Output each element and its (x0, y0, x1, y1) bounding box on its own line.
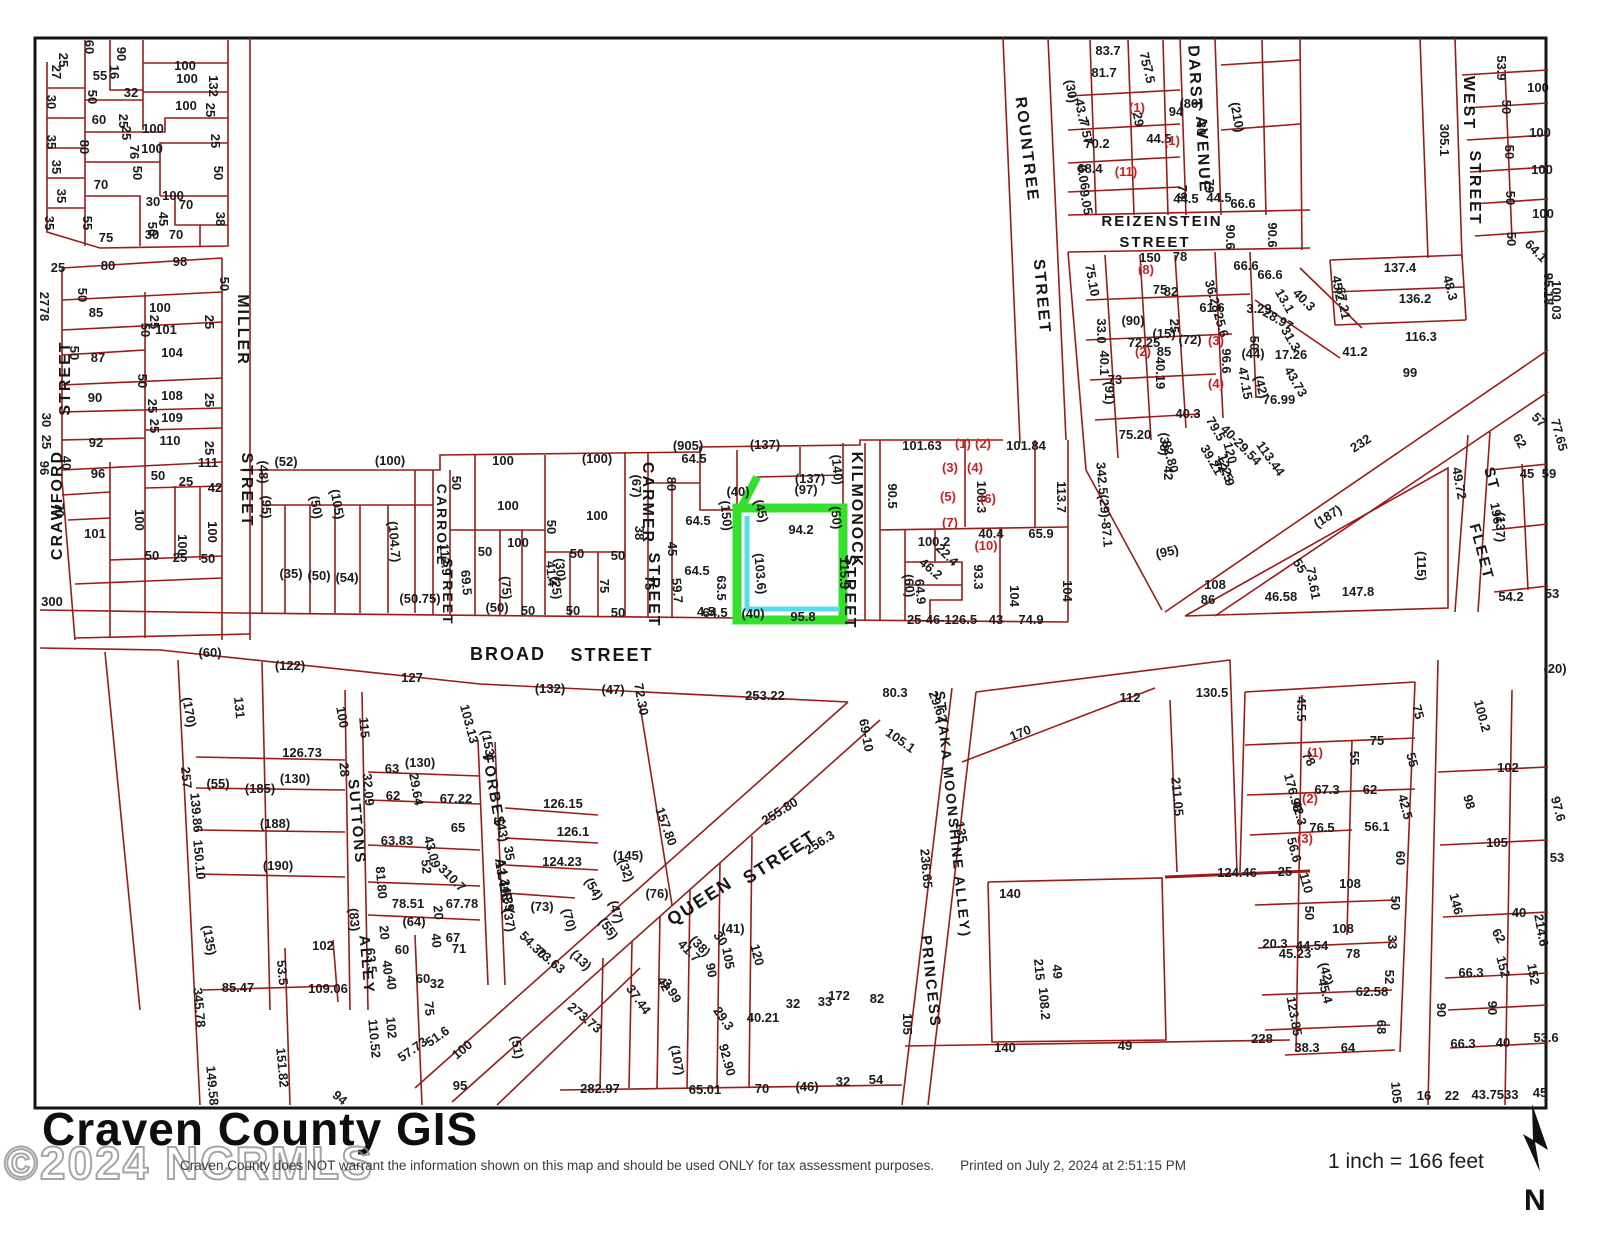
dimension-label: 41.2 (1342, 344, 1367, 359)
dimension-label: 105 (900, 1013, 915, 1035)
dimension-label: 77.65 (1548, 417, 1571, 452)
dimension-label: 100 (1529, 125, 1551, 140)
dimension-label: 101.63 (902, 438, 942, 453)
dimension-label: 103.13 (457, 703, 482, 745)
street-label-princess: PRINCESS (917, 935, 944, 1029)
lot-number-label: (10) (974, 538, 997, 553)
lot-number-label: (40) (726, 484, 749, 499)
dimension-label: 102 (312, 938, 334, 953)
north-arrow-icon: N (1490, 1098, 1570, 1228)
street-label-street: STREET (841, 554, 858, 629)
dimension-label: 105.1 (883, 725, 918, 756)
parcel-map[interactable]: 2527306055163290100100132251005025602510… (0, 0, 1600, 1236)
dimension-label: 62 (1489, 926, 1509, 946)
dimension-label: 29 (1130, 111, 1147, 128)
dimension-label: 123.85 (1284, 995, 1306, 1037)
lot-number-label: (3) (1208, 333, 1224, 348)
dimension-label: 105 (1486, 835, 1508, 850)
parcel-boundary-line (40, 610, 240, 613)
dimension-label: 43 (989, 612, 1003, 627)
parcel-boundary-line (1428, 660, 1438, 1105)
printed-timestamp: Printed on July 2, 2024 at 2:51:15 PM (960, 1158, 1186, 1173)
dimension-label: 50 (449, 476, 464, 490)
dimension-label: 27 (37, 292, 52, 306)
dimension-label: 90 (1485, 1001, 1500, 1015)
dimension-label: 342.5(29)-87.1 (1093, 461, 1115, 547)
dimension-label: 42 (208, 480, 222, 495)
street-label-rountree: ROUNTREE (1012, 96, 1042, 203)
dimension-label: 49 (1118, 1038, 1132, 1053)
dimension-label: 63.83 (381, 833, 414, 848)
dimension-label: 40.3 (1175, 406, 1200, 421)
lot-number-label: (91) (1102, 381, 1117, 404)
dimension-label: 50 (201, 551, 215, 566)
dimension-label: 136.2 (1399, 291, 1432, 306)
dimension-label: 32 (786, 996, 800, 1011)
lot-number-label: (54) (335, 570, 358, 585)
dimension-label: 140 (994, 1040, 1016, 1055)
dimension-label: 83.7 (1095, 43, 1120, 58)
dimension-label: 98 (1460, 793, 1478, 811)
parcel-boundary-line (976, 660, 1230, 692)
dimension-label: 109 (161, 410, 183, 425)
dimension-label: 66.6 (1233, 258, 1258, 273)
parcel-boundary-line (68, 518, 110, 520)
street-label-st-aka-moonshine-alley-: ST (AKA MOONSHINE ALLEY) (932, 690, 974, 939)
dimension-label: 108 (1339, 876, 1361, 891)
parcel-boundary-line (1420, 38, 1428, 258)
dimension-label: 56.1 (1364, 819, 1389, 834)
dimension-label: 48.3 (1440, 274, 1461, 302)
dimension-label: 50 (566, 603, 580, 618)
dimension-label: 53.9 (1494, 55, 1509, 80)
dimension-label: 60 (82, 40, 97, 54)
street-label-carmer: CARMER (639, 462, 656, 544)
disclaimer-body: Craven County does NOT warrant the infor… (180, 1158, 934, 1173)
lot-number-label: (145) (613, 848, 643, 863)
dimension-label: 67.3 (1314, 782, 1339, 797)
dimension-label: 131 (231, 696, 248, 719)
dimension-label: 55 (1403, 751, 1421, 769)
dimension-label: 228 (1251, 1031, 1273, 1046)
lot-number-label: (135) (199, 924, 219, 957)
dimension-label: 66.3 (1450, 1036, 1475, 1051)
dimension-label: 82 (870, 991, 884, 1006)
street-label-miller: MILLER (234, 294, 251, 366)
dimension-label: 90 (114, 47, 129, 61)
dimension-label: 64 (1341, 1040, 1356, 1055)
dimension-label: 40 (1512, 905, 1526, 920)
dimension-label: 42.5 (1395, 793, 1416, 821)
dimension-label: 80 (101, 258, 115, 273)
dimension-label: 100 (205, 521, 220, 543)
dimension-label: 90.6 (1265, 222, 1280, 247)
dimension-label: 232 (1347, 431, 1373, 455)
dimension-label: 30 (145, 227, 159, 242)
dimension-label: 96.6 (1219, 348, 1234, 373)
dimension-label: 30 (146, 194, 160, 209)
dimension-label: 113.7 (1054, 481, 1069, 513)
dimension-label: 64.5 (685, 513, 710, 528)
dimension-label: 55 (80, 216, 95, 230)
dimension-label: 45 (1520, 466, 1534, 481)
dimension-label: 52 (418, 859, 434, 875)
lot-number-label: (150) (718, 500, 736, 532)
dimension-label: 75 (99, 230, 113, 245)
dimension-label: 62 (1510, 431, 1530, 451)
dimension-label: 50 (211, 166, 226, 180)
dimension-label: 25 (202, 315, 217, 329)
dimension-label: 100 (176, 71, 198, 86)
dimension-label: 67.78 (446, 896, 479, 911)
dimension-label: 40 (1496, 1035, 1510, 1050)
lot-number-label: (45) (751, 498, 771, 524)
dimension-label: 96 (91, 466, 105, 481)
dimension-label: 75 (1370, 733, 1384, 748)
dimension-label: 255.80 (759, 794, 801, 828)
dimension-label: 35 (49, 160, 64, 174)
dimension-label: 32 (836, 1074, 850, 1089)
dimension-label: 92.90 (716, 1042, 739, 1077)
dimension-label: 62.58 (1356, 984, 1389, 999)
dimension-label: 60 (1393, 851, 1408, 865)
parcel-boundary-line (262, 662, 270, 1010)
dimension-label: 95 (453, 1078, 467, 1093)
dimension-label: 75 (1409, 703, 1427, 721)
street-label-street: STREET (57, 340, 74, 415)
dimension-label: 151.82 (273, 1047, 291, 1088)
parcel-boundary-line (345, 690, 350, 1010)
dimension-label: 50 (521, 603, 535, 618)
lot-number-label: (50) (828, 505, 845, 529)
dimension-label: 104 (161, 345, 183, 360)
dimension-label: 172 (828, 988, 850, 1003)
dimension-label: 62 (1363, 782, 1377, 797)
lot-number-label: (40) (741, 606, 764, 621)
street-label-fleet: FLEET (1466, 522, 1497, 582)
dimension-label: 50 (130, 166, 145, 180)
dimension-label: 78 (37, 307, 52, 321)
dimension-label: 93.3 (971, 564, 986, 589)
street-label-street: STREET (1119, 234, 1190, 251)
dimension-label: 46.58 (1265, 589, 1298, 604)
dimension-label: 50 (1302, 906, 1317, 920)
parcel-boundary-line (1221, 60, 1300, 65)
street-label-avenue: AVENUE (1192, 116, 1213, 194)
dimension-label: 100 (333, 705, 352, 729)
lot-number-label: (2) (1135, 344, 1151, 359)
lot-number-label: (76) (645, 886, 668, 901)
lot-number-label: (3) (942, 460, 958, 475)
dimension-label: 20 (430, 905, 446, 921)
dimension-label: 52 (1382, 970, 1397, 984)
dimension-label: 40.19 (1153, 357, 1168, 390)
dimension-label: 59 (1542, 466, 1556, 481)
dimension-label: 90 (1434, 1003, 1449, 1017)
dimension-label: 75 (1137, 51, 1154, 68)
lot-number-label: (83) (346, 907, 363, 931)
dimension-label: 70.2 (1084, 136, 1109, 151)
dimension-label: 28 (336, 762, 352, 778)
lot-number-label: (122) (275, 658, 305, 673)
dimension-label: 65.9 (1028, 526, 1053, 541)
lot-number-label: (55) (206, 776, 229, 791)
dimension-label: 101.84 (1006, 438, 1047, 453)
dimension-label: 282.97 (580, 1081, 620, 1096)
lot-number-label: (132) (535, 681, 565, 696)
street-label-street: STREET (440, 558, 456, 625)
dimension-label: 86 (1201, 592, 1215, 607)
dimension-label: 55 (1347, 751, 1362, 765)
dimension-label: 27 (49, 65, 64, 79)
dimension-label: 101 (84, 526, 106, 541)
dimension-label: 30 (44, 95, 59, 109)
dimension-label: 25 (145, 399, 160, 413)
parcel-boundary-line (1265, 1025, 1390, 1030)
dimension-label: 16 (107, 65, 122, 79)
lot-number-label: (50) (485, 600, 508, 615)
dimension-label: 126.1 (557, 824, 590, 839)
dimension-label: 50 (544, 520, 559, 534)
dimension-label: 69.5 (458, 569, 475, 596)
lot-number-label: (47) (601, 682, 624, 697)
parcel-boundary-line (1240, 692, 1245, 872)
dimension-label: 30 (39, 413, 54, 427)
street-label-reizenstein: REIZENSTEIN (1101, 213, 1222, 230)
lot-number-label: (5) (940, 489, 956, 504)
dimension-label: 64.5 (684, 563, 709, 578)
dimension-label: 345.78 (190, 987, 208, 1028)
dimension-label: 60 (395, 942, 409, 957)
lot-number-label: (50) (307, 568, 330, 583)
dimension-label: 60 (416, 971, 430, 986)
dimension-label: 25 (39, 435, 54, 449)
dimension-label: 25 (1278, 864, 1292, 879)
dimension-label: 66.6 (1257, 267, 1282, 282)
dimension-label: 109.06 (308, 981, 348, 996)
lot-number-label: (95) (1154, 542, 1180, 561)
lot-number-label: (100) (582, 451, 612, 466)
dimension-label: 72.30 (631, 682, 651, 717)
dimension-label: 112 (1120, 690, 1141, 705)
dimension-label: 45.23 (1279, 946, 1312, 961)
parcel-boundary-line (1255, 900, 1395, 905)
lot-number-label: (4) (967, 460, 983, 475)
dimension-label: 124.23 (542, 854, 582, 869)
dimension-label: 110 (160, 433, 181, 448)
parcel-boundary-line (196, 874, 345, 877)
dimension-label: 63.5 (714, 575, 729, 600)
dimension-label: 73.61 (1303, 566, 1323, 601)
lot-number-label: (130) (280, 771, 310, 786)
dimension-label: 71 (452, 941, 466, 956)
dimension-label: 40 (379, 960, 395, 976)
dimension-label: 85.47 (222, 980, 255, 995)
dimension-label: 100.2 (1471, 698, 1494, 733)
dimension-label: 67.22 (440, 791, 473, 806)
lot-number-label: (60) (198, 645, 221, 660)
dimension-label: 32 (430, 976, 444, 991)
dimension-label: 66.6 (1230, 196, 1255, 211)
lot-number-label: (72) (1178, 332, 1201, 347)
street-label-crawford: CRAWFORD (49, 450, 66, 560)
lot-number-label: (13) (568, 946, 595, 973)
dimension-label: 65 (451, 820, 465, 835)
dimension-label: 50 (1504, 232, 1519, 246)
lot-number-label: (54) (582, 875, 607, 903)
dimension-label: 100 (449, 1037, 475, 1062)
dimension-label: 22 (1445, 1088, 1459, 1103)
dimension-label: 76 (127, 145, 142, 159)
dimension-label: 100 (1532, 206, 1554, 221)
dimension-label: 44.5 (1173, 191, 1198, 206)
dimension-label: 35 (44, 135, 59, 149)
dimension-label: 236.65 (917, 848, 935, 889)
dimension-label: 100 (497, 498, 519, 513)
dimension-label: 50 (570, 546, 584, 561)
dimension-label: 50 (1388, 896, 1403, 910)
dimension-label: 4.5 (697, 604, 715, 619)
dimension-label: 90.6 (1223, 224, 1238, 249)
dimension-label: 25 (203, 103, 218, 117)
parcel-boundary-line (105, 652, 140, 1010)
street-label-street: STREET (1466, 150, 1483, 225)
dimension-label: 45.5 (1294, 696, 1309, 721)
lot-number-label: (41) (721, 921, 744, 936)
dimension-label: 53 (1545, 586, 1559, 601)
dimension-label: 53 (1550, 850, 1564, 865)
parcel-boundary-line (1245, 738, 1415, 745)
lot-number-label: (64) (402, 914, 425, 929)
lot-number-label: (90) (1121, 313, 1144, 328)
dimension-label: 60 (92, 112, 106, 127)
dimension-label: 68 (1374, 1020, 1389, 1034)
dimension-label: 104 (1060, 580, 1075, 602)
dimension-label: 70 (169, 227, 183, 242)
north-arrow-glyph (1523, 1104, 1548, 1172)
lot-number-label: (20) (1543, 661, 1566, 676)
parcel-boundary-line (1068, 90, 1180, 96)
dimension-label: 95.8 (790, 609, 815, 624)
dimension-label: 50 (85, 90, 100, 104)
dimension-label: 100 (1527, 80, 1549, 95)
lot-number-label: (51) (508, 1035, 527, 1060)
dimension-label: 115 (356, 717, 373, 739)
street-label-street: STREET (645, 552, 662, 627)
parcel-boundary-line (415, 935, 422, 1105)
dimension-label: 54.2 (1498, 589, 1523, 604)
dimension-label: 40 (383, 975, 399, 991)
parcel-boundary-line (1347, 740, 1352, 935)
dimension-label: 50 (1503, 191, 1518, 205)
dimension-label: 25-46-126.5 (907, 612, 977, 627)
dimension-label: 92 (89, 435, 103, 450)
dimension-label: 108 (161, 388, 183, 403)
dimension-label: 69-10 (856, 718, 877, 753)
dimension-label: 137.4 (1384, 260, 1417, 275)
dimension-label: 59.7 (669, 577, 686, 604)
lot-number-label: (2) (975, 436, 991, 451)
parcel-boundary-line (62, 492, 110, 495)
gis-map-page: 2527306055163290100100132251005025602510… (0, 0, 1600, 1236)
dimension-label: 74.9 (1018, 612, 1043, 627)
parcel-boundary-line (196, 757, 345, 760)
lot-number-label: (75) (498, 575, 515, 599)
dimension-label: 81.7 (1091, 65, 1116, 80)
lot-number-label: (4) (1208, 376, 1224, 391)
dimension-label: 50 (611, 605, 625, 620)
dimension-label: 32 (124, 85, 138, 100)
dimension-label: 49.72 (1449, 466, 1469, 501)
dimension-label: 70 (179, 197, 193, 212)
dimension-label: 85 (89, 305, 103, 320)
dimension-label: 100 (132, 509, 147, 531)
dimension-label: 170 (1007, 722, 1033, 744)
dimension-label: 33 (1385, 935, 1400, 949)
lot-number-label: (8) (1138, 262, 1154, 277)
dimension-label: 152 (1524, 962, 1543, 986)
dimension-label: 101 (155, 322, 177, 337)
street-label-street: STREET (570, 645, 653, 665)
dimension-label: 90.5 (885, 483, 900, 508)
parcel-boundary-line (1068, 252, 1086, 470)
dimension-label: 78 (1346, 946, 1360, 961)
parcel-boundary-line (1230, 660, 1237, 872)
lot-number-label: (35) (279, 566, 302, 581)
dimension-label: 100 (142, 121, 164, 136)
lot-number-label: (46) (795, 1079, 818, 1094)
dimension-label: 305.1 (1437, 124, 1452, 157)
dimension-label: 75 (421, 1001, 437, 1017)
dimension-label: 127 (401, 670, 423, 685)
dimension-label: 50 (611, 548, 625, 563)
dimension-label: 40 (428, 933, 444, 949)
lot-number-label: (170) (179, 696, 199, 729)
dimension-label: 25 (202, 441, 217, 455)
lot-number-label: (95) (259, 495, 274, 518)
dimension-label: 45 (665, 542, 680, 556)
disclaimer-text: Craven County does NOT warrant the infor… (180, 1158, 1186, 1173)
parcel-boundary-line (1245, 682, 1415, 692)
dimension-label: 100 (1531, 162, 1553, 177)
dimension-label: 98 (173, 254, 187, 269)
lot-number-label: (11) (1115, 164, 1137, 179)
street-label-alley: ALLEY (355, 934, 377, 994)
lot-number-label: (97) (794, 482, 817, 497)
dimension-label: 29.3 (710, 1004, 737, 1033)
parcel-boundary-line (657, 916, 660, 1088)
dimension-label: 140 (999, 886, 1021, 901)
dimension-label: 35 (42, 216, 57, 230)
lot-number-label: (105) (327, 488, 347, 521)
dimension-label: 76.5 (1309, 820, 1334, 835)
lot-number-label: (48) (256, 460, 271, 483)
dimension-label: 3.29 (1246, 301, 1271, 316)
street-label-west: WEST (1460, 76, 1477, 130)
dimension-label: 82 (1164, 284, 1178, 299)
dimension-label: 100 (175, 98, 197, 113)
dimension-label: 157.80 (652, 805, 680, 847)
dimension-label: 25 (147, 419, 162, 433)
lot-number-label: (70) (559, 907, 579, 933)
dimension-label: 53.5 (274, 959, 291, 986)
parcel-boundary-line (1163, 40, 1168, 215)
lot-number-label: (7) (942, 515, 958, 530)
dimension-label: 35 (54, 189, 69, 203)
street-label-street: STREET (238, 452, 255, 527)
dimension-label: 105 (1388, 1081, 1405, 1104)
dimension-label: 90 (88, 390, 102, 405)
